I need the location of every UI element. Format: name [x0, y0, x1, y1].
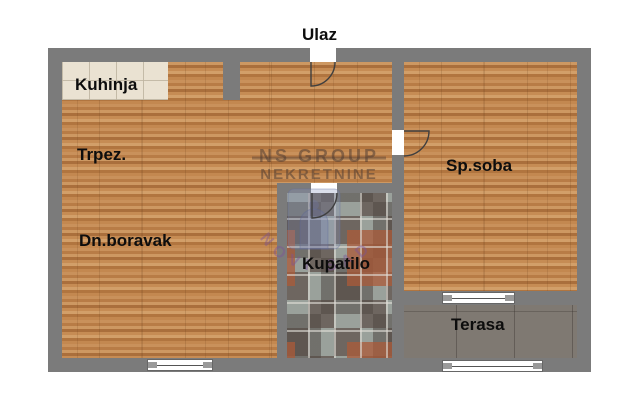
living-room-window	[147, 359, 213, 371]
label-bedroom: Sp.soba	[446, 156, 512, 176]
label-kitchen: Kuhinja	[75, 75, 137, 95]
label-living: Dn.boravak	[79, 231, 172, 251]
label-dining: Trpez.	[77, 145, 126, 165]
wall-bathroom-top	[287, 183, 392, 193]
floor-bedroom	[398, 56, 584, 296]
wall-center-vertical	[392, 62, 404, 358]
wall-left	[48, 48, 62, 372]
floorplan: NS GROUP NEKRETNINE NOVI SAD Ulaz Kuhinj…	[0, 0, 639, 420]
watermark-line1: NS GROUP	[238, 146, 400, 167]
watermark-line2: NEKRETNINE	[238, 166, 400, 183]
floor-bathroom	[282, 188, 394, 360]
bedroom-terrace-window	[442, 292, 515, 304]
label-terrace: Terasa	[451, 315, 505, 335]
entrance-door-opening	[310, 48, 336, 62]
terrace-railing-window	[442, 360, 543, 372]
wall-right	[577, 48, 591, 372]
bathroom-door-opening	[311, 183, 337, 193]
wall-kitchen-stub	[223, 62, 240, 100]
label-bathroom: Kupatilo	[302, 254, 370, 274]
wall-bathroom-left	[277, 183, 287, 358]
label-entrance: Ulaz	[302, 25, 337, 45]
